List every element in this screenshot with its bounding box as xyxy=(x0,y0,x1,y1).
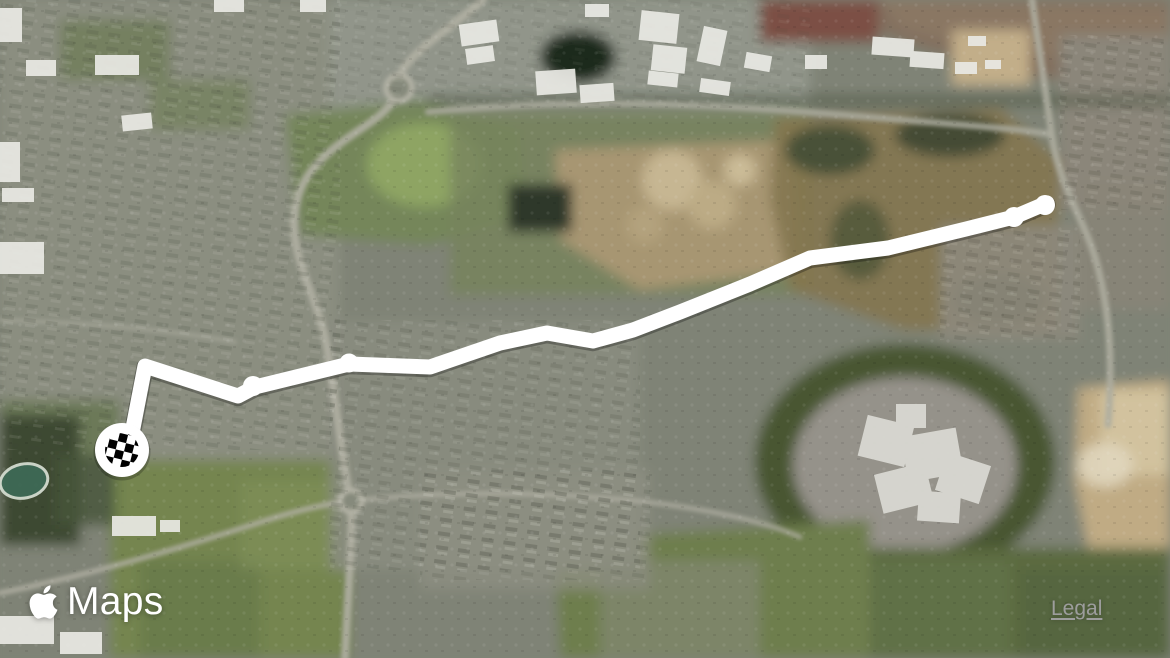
apple-maps-window: Maps Legal xyxy=(0,0,1170,658)
map-satellite-view[interactable] xyxy=(0,0,1170,658)
legal-link[interactable]: Legal xyxy=(1051,597,1102,621)
